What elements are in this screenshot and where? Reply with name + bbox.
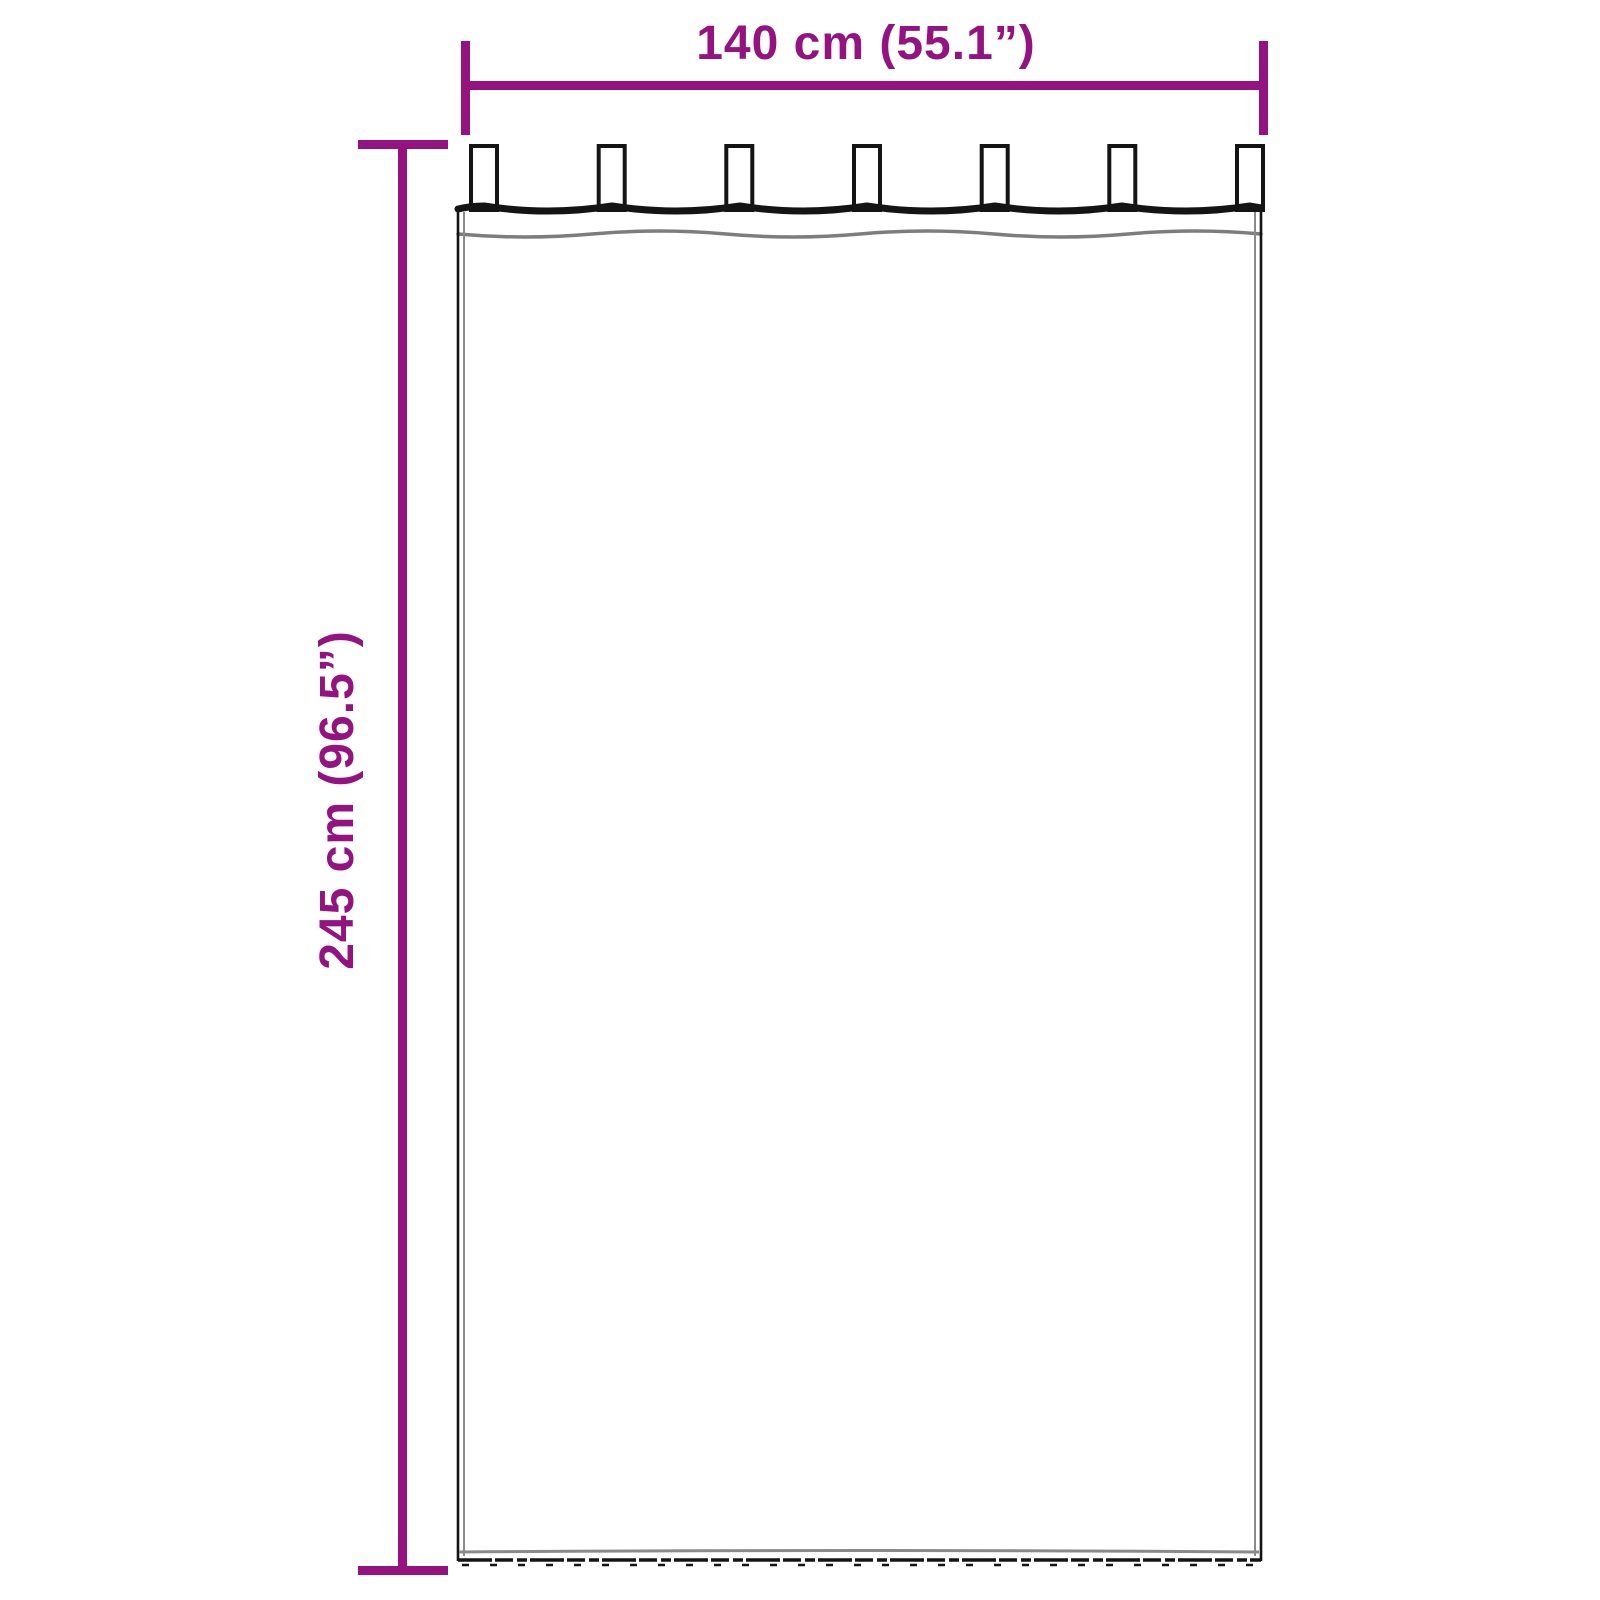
- curtain-tab: [471, 146, 497, 210]
- curtain-tab: [982, 146, 1008, 210]
- width-dimension-cap-left: [461, 41, 470, 135]
- curtain-header-top-edge: [458, 206, 1261, 211]
- curtain-bottom-hem-seam: [459, 1551, 1259, 1553]
- curtain-tab: [1237, 146, 1263, 210]
- curtain-tab: [1109, 146, 1135, 210]
- width-dimension-line: [461, 81, 1268, 90]
- height-dimension-cap-top: [358, 140, 448, 149]
- width-dimension-label: 140 cm (55.1”): [696, 20, 1036, 68]
- curtain-tab: [854, 146, 880, 210]
- height-dimension-cap-bottom: [358, 1566, 448, 1575]
- curtain-body: [458, 208, 1261, 1560]
- curtain-illustration: [0, 0, 1600, 1600]
- height-dimension-line: [398, 140, 407, 1575]
- curtain-tabs: [471, 146, 1263, 210]
- diagram-canvas: 140 cm (55.1”) 245 cm (96.5”): [0, 0, 1600, 1600]
- curtain-tab: [599, 146, 625, 210]
- width-dimension-cap-right: [1259, 41, 1268, 135]
- height-dimension-label: 245 cm (96.5”): [314, 630, 362, 970]
- curtain-tab: [726, 146, 752, 210]
